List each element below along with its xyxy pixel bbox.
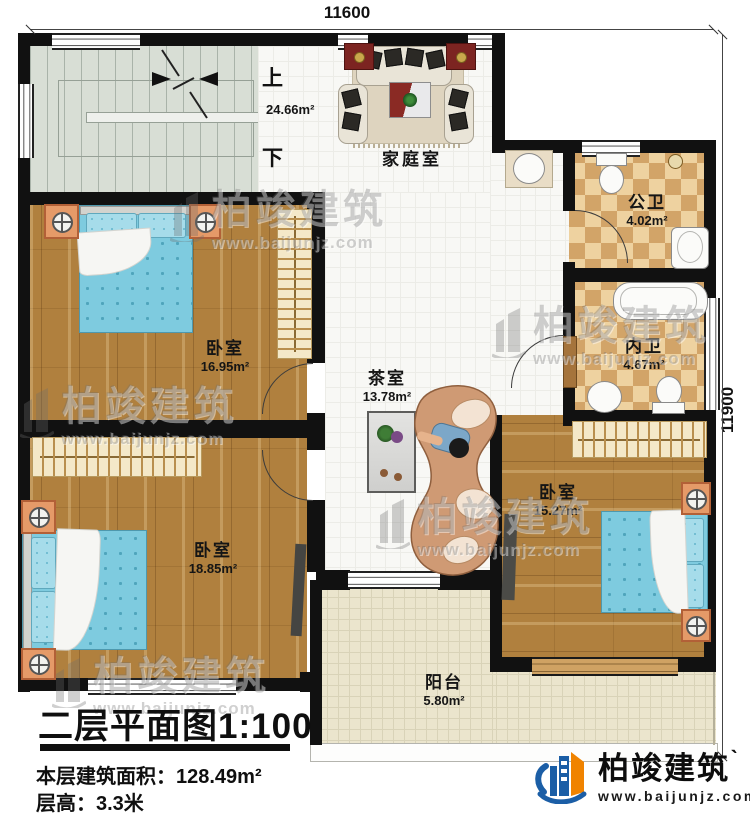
- bed: [22, 530, 147, 650]
- brand-tick: ˋ: [730, 746, 740, 773]
- brand-url: www.baijunjz.com: [598, 788, 750, 804]
- wash-basin: [513, 153, 545, 184]
- bathtub-inner: [620, 287, 697, 315]
- window: [18, 84, 34, 158]
- nightstand: [21, 500, 56, 534]
- side-table: [446, 43, 476, 70]
- plant-icon: [403, 93, 417, 107]
- wall: [563, 153, 575, 211]
- flower-icon: [391, 431, 403, 443]
- dimension-line: [722, 35, 723, 757]
- floor-height-line: 层高：3.3米: [36, 787, 144, 816]
- bedroom-balcony-opening: [532, 657, 678, 676]
- balcony-label: 阳台 5.80m²: [402, 672, 486, 710]
- brand-logo: 柏竣建筑ˋ www.baijunjz.com: [534, 748, 750, 804]
- balcony-railing: [713, 672, 715, 745]
- bedroom-bottom-left-label: 卧室 18.85m²: [168, 540, 258, 578]
- wall: [492, 33, 505, 153]
- wash-basin: [587, 381, 622, 413]
- toilet-bowl: [599, 165, 624, 194]
- family-room-label: 家庭室: [382, 145, 442, 170]
- nightstand: [44, 204, 79, 239]
- sofa-pillow: [449, 112, 469, 132]
- floor-area-line: 本层建筑面积：128.49m²: [36, 760, 262, 789]
- dimension-line: [30, 29, 714, 30]
- pillow: [31, 537, 56, 589]
- window: [52, 33, 140, 50]
- floor-plan: 上 下 24.66m² 家庭室 公卫 4.02m² 内卫 4.67m² 卧室 1…: [0, 0, 750, 817]
- lamp-icon: [195, 212, 216, 233]
- bed: [79, 205, 193, 333]
- lamp-icon: [686, 489, 707, 510]
- wall: [490, 657, 534, 672]
- wall: [563, 268, 716, 282]
- stairs-down-label: 下: [262, 142, 283, 172]
- toilet-tank: [652, 402, 685, 414]
- wall: [300, 672, 312, 692]
- floor-area-label: 本层建筑面积：: [36, 766, 176, 788]
- wall: [676, 657, 716, 672]
- wall: [307, 500, 325, 572]
- sofa-pillow: [384, 48, 403, 67]
- bed: [601, 511, 708, 613]
- side-table: [344, 43, 374, 70]
- wardrobe: [572, 421, 707, 458]
- lamp-icon: [686, 616, 707, 637]
- wall: [18, 420, 307, 438]
- private-bath-label: 内卫 4.67m²: [602, 336, 686, 374]
- balcony-floor: [316, 586, 496, 743]
- lamp-icon: [52, 212, 73, 233]
- wardrobe: [32, 437, 202, 477]
- lamp-icon: [456, 52, 467, 63]
- plan-title-scale: 1:100: [218, 707, 313, 746]
- sofa-pillow: [405, 48, 424, 67]
- plan-title: 二层平面图1:100: [38, 698, 313, 749]
- nightstand: [189, 204, 221, 239]
- sofa-pillow: [425, 49, 445, 69]
- floor-height-label: 层高：: [36, 793, 96, 815]
- lamp-icon: [29, 507, 50, 528]
- plan-title-text: 二层平面图: [38, 707, 218, 746]
- bed-sheet-fold: [77, 227, 154, 276]
- chaise-lounge: [405, 382, 505, 594]
- public-bath-label: 公卫 4.02m²: [605, 192, 689, 230]
- wall: [307, 413, 325, 450]
- nightstand: [681, 482, 711, 515]
- shower-basin-bowl: [677, 231, 703, 263]
- lamp-icon: [29, 654, 50, 675]
- door-leaf: [563, 336, 577, 388]
- tea-room-label: 茶室 13.78m²: [347, 368, 427, 406]
- wardrobe: [277, 209, 312, 359]
- bedroom-top-left-label: 卧室 16.95m²: [180, 338, 270, 376]
- brand-name: 柏竣建筑ˋ: [598, 748, 750, 784]
- teacup-icon: [380, 469, 388, 477]
- floor-area-value: 128.49m²: [176, 766, 262, 788]
- sofa-pillow: [342, 112, 362, 132]
- stairs-up-label: 上: [262, 62, 283, 92]
- teacup-icon: [394, 473, 402, 481]
- bedroom-right-label: 卧室 15.27m²: [513, 482, 603, 520]
- window: [88, 678, 236, 695]
- dimension-top: 11600: [312, 3, 382, 23]
- pillow: [31, 591, 56, 643]
- family-room-area: 24.66m²: [266, 102, 314, 117]
- stair-direction-arrow: [30, 46, 258, 192]
- dimension-right: 11900: [718, 380, 738, 440]
- ceiling-lamp-icon: [668, 154, 683, 169]
- bed-sheet-fold: [649, 509, 689, 614]
- coffee-table: [389, 82, 431, 118]
- nightstand: [681, 609, 711, 642]
- floor-height-value: 3.3米: [96, 793, 144, 815]
- lamp-icon: [354, 52, 365, 63]
- brand-logo-icon: [534, 748, 590, 804]
- nightstand: [21, 648, 56, 680]
- bed-sheet-fold: [53, 528, 101, 651]
- title-underline: [40, 744, 290, 751]
